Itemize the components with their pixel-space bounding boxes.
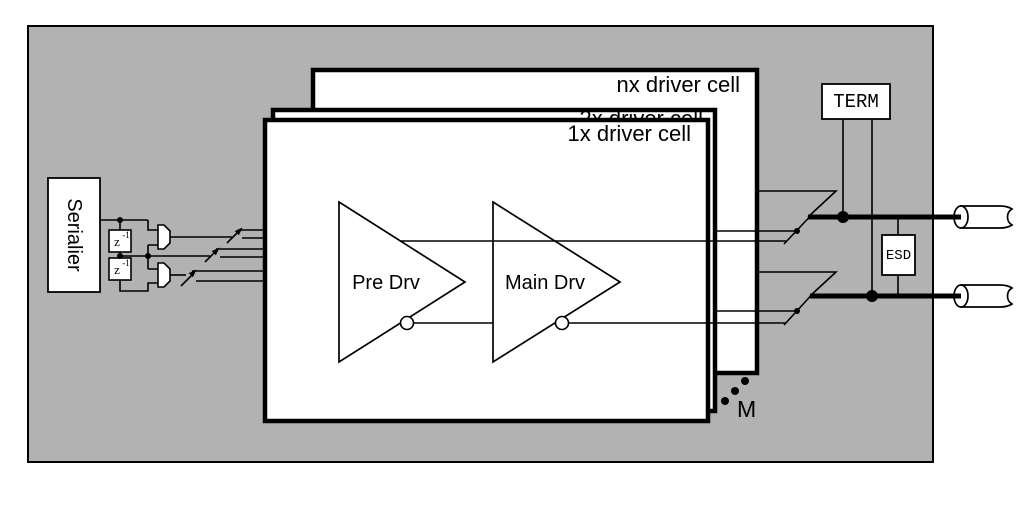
pre-driver-inverter-bubble bbox=[401, 317, 414, 330]
junction-dot bbox=[145, 253, 151, 259]
driver-circuit-diagram: Serialier z -1 z -1 bbox=[0, 0, 1023, 509]
mux2 bbox=[158, 263, 170, 287]
main-driver-label: Main Drv bbox=[505, 272, 585, 294]
x1-driver-cell-label: 1x driver cell bbox=[568, 121, 691, 146]
multiplicity-label: M bbox=[737, 396, 756, 422]
main-driver-inverter-bubble bbox=[556, 317, 569, 330]
junction-dot bbox=[117, 253, 123, 259]
junction-dot bbox=[117, 217, 123, 223]
delay2-exponent: -1 bbox=[122, 258, 130, 268]
junction-dot bbox=[794, 308, 800, 314]
junction-dot-large bbox=[866, 290, 878, 302]
term-label: TERM bbox=[833, 91, 879, 113]
ellipsis-dot bbox=[731, 387, 739, 395]
junction-dot bbox=[794, 228, 800, 234]
nx-driver-cell-label: nx driver cell bbox=[617, 72, 740, 97]
serializer-label: Serialier bbox=[63, 198, 85, 272]
mux1 bbox=[158, 225, 170, 249]
ellipsis-dot bbox=[741, 377, 749, 385]
delay2-label: z bbox=[114, 262, 120, 277]
esd-label: ESD bbox=[886, 248, 911, 264]
pre-driver-label: Pre Drv bbox=[352, 272, 420, 294]
ellipsis-dot bbox=[721, 397, 729, 405]
x1-driver-cell-box bbox=[265, 120, 708, 421]
delay1-label: z bbox=[114, 234, 120, 249]
junction-dot-large bbox=[837, 211, 849, 223]
serializer-block: Serialier bbox=[48, 178, 100, 292]
delay1-exponent: -1 bbox=[122, 230, 130, 240]
